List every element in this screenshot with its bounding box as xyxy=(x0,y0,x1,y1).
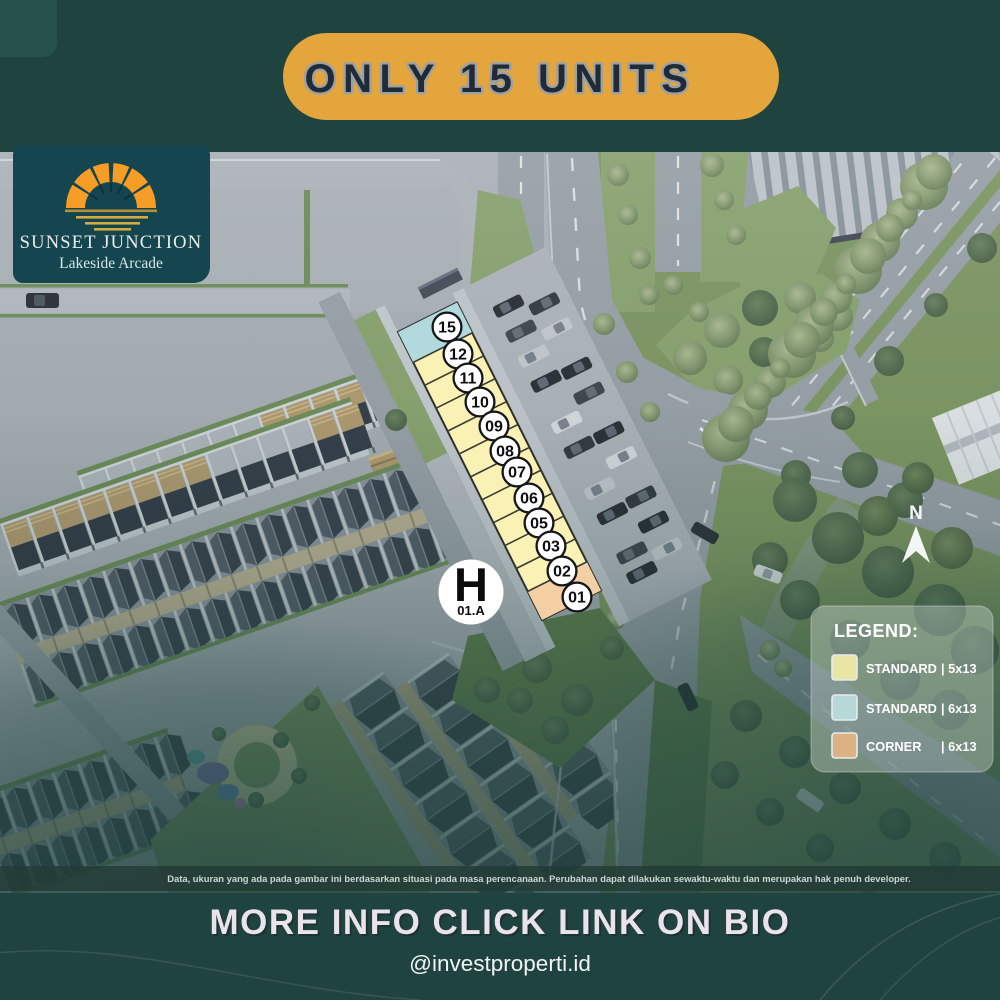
svg-text:02: 02 xyxy=(553,564,571,581)
svg-text:Lakeside Arcade: Lakeside Arcade xyxy=(59,255,163,272)
svg-text:10: 10 xyxy=(471,395,489,412)
svg-text:15: 15 xyxy=(438,320,456,337)
svg-text:03: 03 xyxy=(542,539,560,556)
svg-text:| 6x13: | 6x13 xyxy=(941,739,977,754)
svg-text:N: N xyxy=(909,503,923,524)
svg-text:05: 05 xyxy=(530,516,548,533)
svg-text:CORNER: CORNER xyxy=(866,739,921,754)
svg-text:01.A: 01.A xyxy=(457,603,485,618)
svg-text:| 5x13: | 5x13 xyxy=(941,661,977,676)
svg-text:STANDARD: STANDARD xyxy=(866,701,937,716)
svg-text:12: 12 xyxy=(449,347,467,364)
svg-text:09: 09 xyxy=(485,419,503,436)
svg-text:01: 01 xyxy=(568,590,586,607)
svg-text:LEGEND:: LEGEND: xyxy=(834,621,919,641)
svg-text:ONLY 15 UNITS: ONLY 15 UNITS xyxy=(305,57,696,101)
svg-text:| 6x13: | 6x13 xyxy=(941,701,977,716)
svg-text:07: 07 xyxy=(508,465,526,482)
svg-text:STANDARD: STANDARD xyxy=(866,661,937,676)
svg-text:06: 06 xyxy=(520,491,538,508)
svg-text:11: 11 xyxy=(460,371,477,388)
svg-text:SUNSET JUNCTION: SUNSET JUNCTION xyxy=(20,233,203,253)
